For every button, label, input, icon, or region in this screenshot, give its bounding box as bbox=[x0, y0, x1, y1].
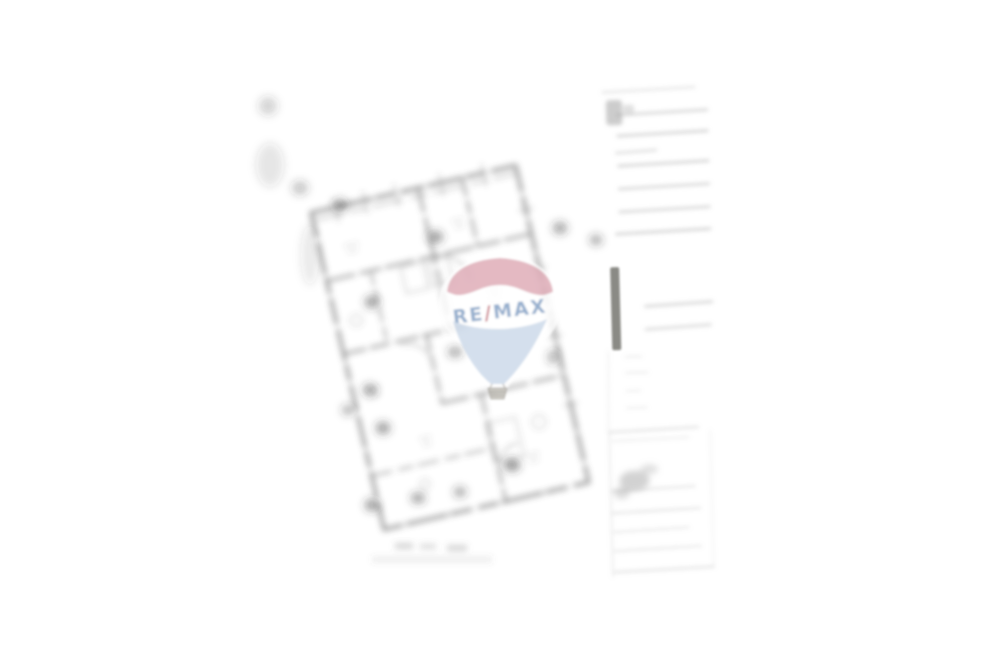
plan-caption-smudges bbox=[372, 543, 492, 563]
floor-plan-scan-photo: RE/MAX bbox=[0, 0, 1000, 667]
scan-canvas: RE/MAX bbox=[0, 0, 1000, 667]
side-dark-bar bbox=[610, 267, 621, 350]
remax-balloon-watermark: RE/MAX bbox=[438, 255, 562, 399]
floorplan-drawing bbox=[309, 155, 596, 529]
side-annotation-panel bbox=[599, 87, 715, 432]
bottom-right-table-smudge bbox=[609, 427, 714, 577]
panel-top-stamp-smudge bbox=[606, 100, 623, 125]
